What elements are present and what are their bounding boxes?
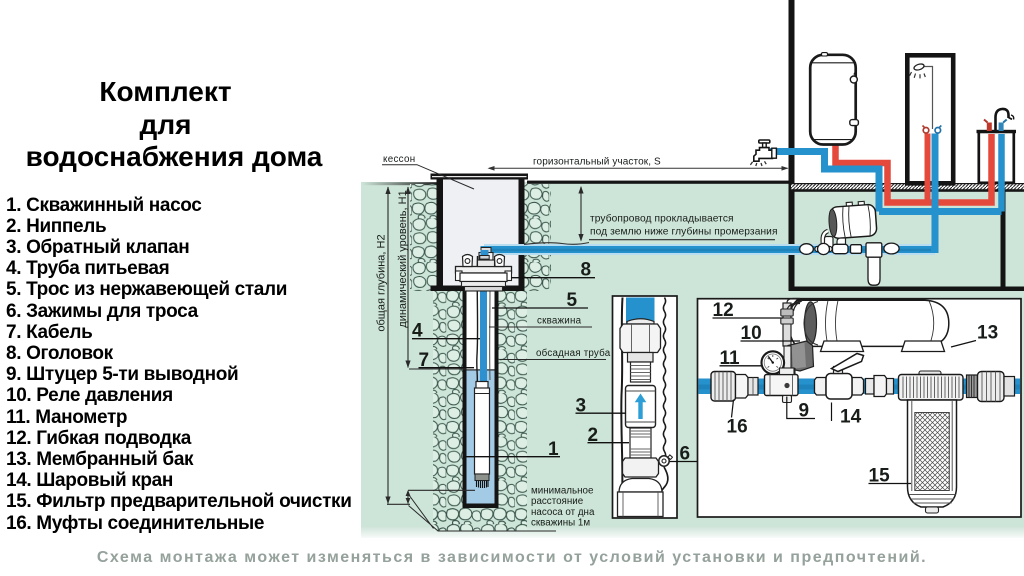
svg-text:под землю ниже глубины промерз: под землю ниже глубины промерзания [590, 226, 778, 238]
svg-text:общая глубина, Н2: общая глубина, Н2 [376, 234, 388, 331]
svg-text:13: 13 [977, 323, 998, 344]
svg-text:кессон: кессон [383, 154, 415, 165]
svg-text:трубопровод прокладывается: трубопровод прокладывается [590, 213, 734, 225]
svg-text:горизонтальный участок, S: горизонтальный участок, S [533, 157, 661, 168]
svg-text:минимальное: минимальное [531, 486, 594, 497]
svg-text:обсадная труба: обсадная труба [536, 348, 611, 359]
svg-text:14: 14 [840, 407, 862, 428]
svg-text:скважины 1м: скважины 1м [531, 518, 590, 529]
svg-text:динамический уровень, Н1: динамический уровень, Н1 [397, 190, 409, 327]
svg-text:16: 16 [727, 417, 748, 438]
svg-text:расстояние: расстояние [531, 496, 584, 507]
svg-text:насоса от дна: насоса от дна [531, 507, 595, 518]
svg-text:скважина: скважина [537, 316, 582, 327]
